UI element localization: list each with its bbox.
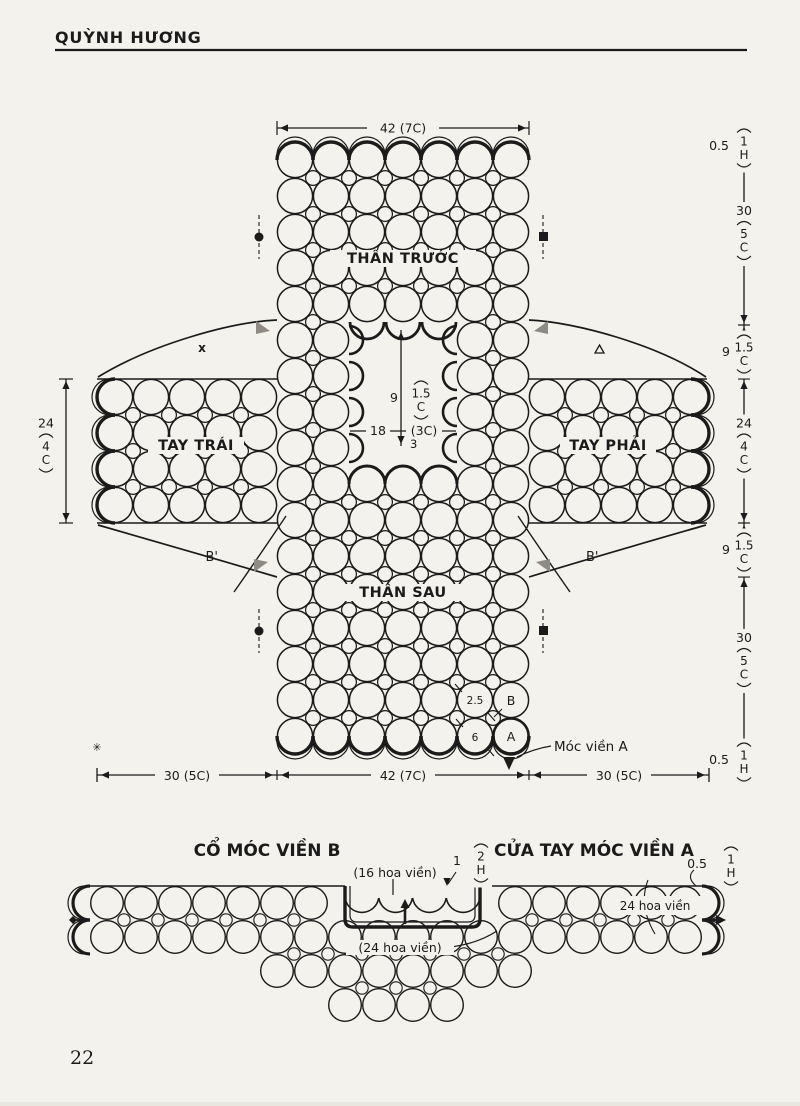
motif-circle (277, 322, 312, 357)
motif-circle (349, 286, 384, 321)
motif-circle (421, 178, 456, 213)
measure-sub: 5 (740, 654, 748, 668)
motif-circle (533, 887, 566, 920)
motif-circle (457, 430, 492, 465)
motif-circle (329, 989, 362, 1022)
right-sleeve-label: TAY PHẢI (569, 435, 647, 454)
bold-down-arrow (503, 757, 515, 770)
motif-circle (385, 682, 420, 717)
motif-circle (457, 466, 492, 501)
motif-circle (295, 887, 328, 920)
motif-circle (277, 646, 312, 681)
motif-circle (450, 531, 465, 546)
page-number: 22 (70, 1047, 94, 1069)
motif-circle (424, 982, 436, 994)
motif-circle (313, 610, 348, 645)
motif-circle (493, 574, 528, 609)
dot-marker (255, 627, 264, 636)
measure-sub: 1.5 (734, 341, 753, 355)
motif-circle (306, 639, 321, 654)
motif-circle (306, 315, 321, 330)
motif-circle (126, 480, 141, 495)
front-body-label: THÂN TRƯỚC (347, 249, 459, 267)
neck-edging-title: CỔ MÓC VIỀN B (194, 836, 341, 861)
motif-circle (601, 451, 636, 486)
motif-circle (241, 487, 276, 522)
motif-circle (277, 394, 312, 429)
motif-circle (234, 480, 249, 495)
motif-circle (342, 567, 357, 582)
motif-circle (313, 358, 348, 393)
motif-circle (594, 408, 609, 423)
motif-circle (558, 480, 573, 495)
motif-circle (125, 921, 158, 954)
motif-circle (465, 955, 498, 988)
motif-circle (277, 538, 312, 573)
motif-circle (431, 955, 464, 988)
measure-value: 9 (390, 390, 398, 405)
motif-circle (385, 646, 420, 681)
motif-circle (493, 502, 528, 537)
square-marker (539, 232, 548, 241)
motif-circle (499, 887, 532, 920)
asterisk-mark: ✳ (92, 741, 101, 754)
arrowhead (740, 579, 747, 587)
motif-circle (133, 451, 168, 486)
motif-circle (421, 502, 456, 537)
measure-value: 0.5 (709, 138, 729, 153)
motif-circle (526, 914, 538, 926)
motif-circle (162, 480, 177, 495)
motif-circle (342, 675, 357, 690)
motif-circle (457, 178, 492, 213)
motif-circle (421, 610, 456, 645)
motif-circle (414, 711, 429, 726)
motif-circle (277, 358, 312, 393)
motif-circle (450, 675, 465, 690)
motif-circle (630, 408, 645, 423)
motif-circle (205, 487, 240, 522)
motif-circle (486, 387, 501, 402)
motif-circle (261, 921, 294, 954)
motif-circle (630, 480, 645, 495)
motif-circle (457, 394, 492, 429)
measure-sub: C (740, 354, 748, 368)
motif-b-label: B (507, 693, 516, 708)
motif-circle (205, 451, 240, 486)
motif-circle (493, 358, 528, 393)
arrowhead (397, 436, 404, 444)
motif-circle (457, 214, 492, 249)
crochet-pattern-diagram: 0.51H305C91.5C244C91.5C305C0.51H244C91.5… (0, 0, 800, 1102)
motif-circle (421, 682, 456, 717)
motif-circle (666, 480, 681, 495)
motif-circle (594, 480, 609, 495)
neck-flower-count: (16 hoa viền) (353, 865, 436, 880)
motif-circle (342, 711, 357, 726)
motif-circle (414, 639, 429, 654)
motif-circle (414, 171, 429, 186)
motif-circle (306, 459, 321, 474)
arrowhead (517, 771, 525, 778)
motif-circle (313, 286, 348, 321)
motif-circle (385, 610, 420, 645)
top-width-label: 42 (7C) (380, 121, 426, 136)
motif-circle (313, 322, 348, 357)
motif-circle (486, 351, 501, 366)
left-ruler: 244C (35, 379, 73, 523)
motif-circle (133, 487, 168, 522)
measure-sub: 4 (42, 440, 50, 454)
motif-circle (378, 207, 393, 222)
b-prime-right-mark: B' (586, 550, 599, 565)
motif-circle (313, 430, 348, 465)
motif-circle (637, 451, 672, 486)
motif-circle (628, 914, 640, 926)
motif-circle (152, 914, 164, 926)
motif-circle (529, 379, 564, 414)
motif-circle (601, 379, 636, 414)
measure-value: 30 (736, 203, 752, 218)
motif-circle (306, 171, 321, 186)
motif-circle (378, 567, 393, 582)
motif-circle (414, 567, 429, 582)
dot-marker (255, 233, 264, 242)
motif-circle (666, 408, 681, 423)
motif-circle (390, 982, 402, 994)
motif-circle (205, 379, 240, 414)
motif-circle (378, 639, 393, 654)
motif-circle (421, 286, 456, 321)
motif-circle (342, 531, 357, 546)
bold-up-arrow (401, 899, 410, 908)
motif-circle (186, 914, 198, 926)
measure-value: 0.5 (709, 752, 729, 767)
bottom-width-right: 30 (5C) (596, 768, 642, 783)
motif-circle (486, 567, 501, 582)
motif-circle (457, 322, 492, 357)
motif-circle (306, 387, 321, 402)
arrowhead (101, 771, 109, 778)
motif-circle (349, 682, 384, 717)
motif-circle (277, 610, 312, 645)
motif-circle (342, 171, 357, 186)
motif-circle (306, 603, 321, 618)
motif-circle (567, 921, 600, 954)
motif-circle (457, 286, 492, 321)
motif-circle (118, 914, 130, 926)
motif-circle (486, 459, 501, 474)
motif-circle (457, 538, 492, 573)
motif-circle (414, 603, 429, 618)
measure-sub: C (740, 668, 748, 682)
measure-sub: C (42, 453, 50, 467)
measure-sub: C (417, 400, 425, 414)
motif-circle (349, 502, 384, 537)
motif-circle (414, 207, 429, 222)
motif-circle (306, 675, 321, 690)
motif-circle (450, 171, 465, 186)
motif-circle (193, 887, 226, 920)
motif-circle (193, 921, 226, 954)
motif-circle (356, 982, 368, 994)
motif-circle (486, 531, 501, 546)
motif-circle (313, 682, 348, 717)
measure-sub: H (739, 148, 748, 162)
motif-circle (450, 279, 465, 294)
junction-shade (536, 559, 550, 572)
bottom-width-left: 30 (5C) (164, 768, 210, 783)
motif-circle (486, 243, 501, 258)
motif-circle (457, 610, 492, 645)
motif-circle (499, 955, 532, 988)
arrowhead (280, 124, 288, 131)
motif-circle (529, 415, 564, 450)
neck-width-value: 18 (370, 423, 386, 438)
right-ruler: 0.51H305C91.5C244C91.5C305C0.51H (709, 125, 755, 787)
motif-circle (91, 887, 124, 920)
motif-circle (342, 207, 357, 222)
motif-circle (261, 955, 294, 988)
motif-circle (126, 408, 141, 423)
motif-circle (492, 948, 504, 960)
motif-circle (486, 171, 501, 186)
motif-circle (277, 430, 312, 465)
motif-circle (421, 538, 456, 573)
motif-circle (662, 914, 674, 926)
motif-circle (669, 921, 702, 954)
motif-circle (313, 214, 348, 249)
motif-circle (594, 914, 606, 926)
motif-circle (486, 603, 501, 618)
motif-circle (241, 451, 276, 486)
motif-circle (313, 466, 348, 501)
motif-circle (558, 408, 573, 423)
motif-circle (227, 887, 260, 920)
motif-circle (486, 423, 501, 438)
arrowhead (533, 771, 541, 778)
motif-circle (533, 921, 566, 954)
motif-circle (601, 487, 636, 522)
motif-circle (378, 495, 393, 510)
measure-sub: 2 (477, 850, 485, 864)
motif-circle (277, 574, 312, 609)
motif-circle (313, 646, 348, 681)
motif-circle (385, 538, 420, 573)
motif-circle (198, 408, 213, 423)
motif-circle (277, 682, 312, 717)
measure-sub: 1.5 (411, 387, 430, 401)
measure-sub: 1 (740, 135, 748, 149)
motif-circle (378, 603, 393, 618)
motif-circle (277, 214, 312, 249)
motif-circle (363, 989, 396, 1022)
motif-circle (227, 921, 260, 954)
motif-circle (486, 495, 501, 510)
motif-circle (486, 639, 501, 654)
motif-circle (277, 286, 312, 321)
motif-circle (198, 480, 213, 495)
motif-circle (288, 914, 300, 926)
right-arrow (716, 915, 726, 925)
motif-circle (342, 495, 357, 510)
measure-sub: H (476, 863, 485, 877)
back-neck-drop: 3 (410, 437, 417, 451)
motif-circle (450, 567, 465, 582)
motif-circle (493, 646, 528, 681)
motif-circle (529, 451, 564, 486)
motif-circle (329, 955, 362, 988)
measure-value: 30 (736, 630, 752, 645)
motif-circle (261, 887, 294, 920)
motif-circle (169, 451, 204, 486)
motif-circle (397, 955, 430, 988)
motif-circle (349, 214, 384, 249)
motif-circle (277, 178, 312, 213)
motif-circle (91, 921, 124, 954)
x-mark: x (198, 341, 206, 355)
motif-circle (565, 379, 600, 414)
motif-circle (378, 531, 393, 546)
square-marker (539, 626, 548, 635)
motif-circle (493, 250, 528, 285)
motif-circle (666, 444, 681, 459)
motif-circle (486, 279, 501, 294)
back-body-label: THÂN SAU (359, 584, 446, 601)
motif-circle (313, 178, 348, 213)
motif-circle (378, 279, 393, 294)
motif-circle (313, 502, 348, 537)
motif-circle (169, 487, 204, 522)
motif-circle (306, 279, 321, 294)
motif-circle (529, 487, 564, 522)
motif-circle (162, 408, 177, 423)
arrowhead (740, 381, 747, 389)
motif-circle (342, 603, 357, 618)
b-prime-left-mark: B' (206, 550, 219, 565)
motif-circle (306, 531, 321, 546)
motif-circle (560, 914, 572, 926)
motif-circle (385, 178, 420, 213)
motif-circle (397, 989, 430, 1022)
book-header: QUỲNH HƯƠNG (55, 28, 202, 47)
arrowhead (265, 771, 273, 778)
motif-circle (349, 178, 384, 213)
arrowhead (697, 771, 705, 778)
motif-circle (493, 538, 528, 573)
cuff-edging-title: CỬA TAY MÓC VIỀN A (494, 837, 695, 861)
arrowhead (281, 771, 289, 778)
large-motif-diameter: 6 (472, 732, 479, 744)
motif-circle (457, 358, 492, 393)
motif-circle (486, 675, 501, 690)
arrowhead (62, 513, 69, 521)
motif-circle (486, 315, 501, 330)
motif-circle (450, 603, 465, 618)
motif-circle (450, 495, 465, 510)
motif-circle (241, 415, 276, 450)
motif-circle (431, 989, 464, 1022)
measure-value: 9 (722, 344, 730, 359)
motif-circle (601, 921, 634, 954)
motif-circle (565, 487, 600, 522)
motif-circle (637, 487, 672, 522)
measure-sub: C (740, 453, 748, 467)
motif-circle (306, 243, 321, 258)
motif-circle (378, 171, 393, 186)
motif-circle (234, 408, 249, 423)
motif-circle (133, 379, 168, 414)
cuff-flower-count: 24 hoa viền (620, 899, 691, 913)
edge-crochet-note: Móc viền A (554, 738, 629, 755)
motif-circle (421, 646, 456, 681)
motif-circle (125, 887, 158, 920)
motif-circle (159, 887, 192, 920)
motif-circle (414, 675, 429, 690)
motif-circle (499, 921, 532, 954)
motif-circle (565, 451, 600, 486)
motif-circle (295, 921, 328, 954)
motif-circle (385, 502, 420, 537)
motif-circle (313, 394, 348, 429)
measure-sub: 1 (740, 749, 748, 763)
motif-circle (450, 639, 465, 654)
motif-circle (169, 379, 204, 414)
motif-circle (378, 675, 393, 690)
motif-circle (254, 914, 266, 926)
motif-circle (342, 279, 357, 294)
motif-circle (220, 914, 232, 926)
measure-sub: C (740, 241, 748, 255)
motif-circle (349, 538, 384, 573)
left-sleeve-label: TAY TRÁI (158, 437, 234, 454)
measure-sub: C (740, 552, 748, 566)
motif-circle (567, 887, 600, 920)
motif-circle (414, 279, 429, 294)
motif-circle (349, 646, 384, 681)
measure-value: 24 (38, 416, 54, 431)
junction-shade (534, 321, 548, 334)
arrowhead (740, 513, 747, 521)
motif-circle (306, 495, 321, 510)
triangle-mark (595, 345, 604, 353)
measure-value: 24 (736, 416, 752, 431)
motif-circle (306, 351, 321, 366)
motif-circle (306, 423, 321, 438)
bottom-width-center: 42 (7C) (380, 768, 426, 783)
motif-circle (363, 955, 396, 988)
neck-width-unit: (3C) (411, 423, 437, 438)
measure-value: 1 (453, 853, 461, 868)
motif-circle (306, 567, 321, 582)
scanned-book-page: 0.51H305C91.5C244C91.5C305C0.51H244C91.5… (0, 0, 800, 1102)
motif-circle (126, 444, 141, 459)
motif-circle (385, 286, 420, 321)
motif-a-label: A (507, 729, 516, 744)
motif-circle (277, 466, 312, 501)
motif-circle (306, 711, 321, 726)
motif-circle (486, 207, 501, 222)
arrowhead (62, 381, 69, 389)
motif-circle (458, 948, 470, 960)
junction-shade (254, 559, 268, 572)
motif-circle (457, 646, 492, 681)
motif-circle (313, 538, 348, 573)
motif-circle (241, 379, 276, 414)
motif-circle (493, 466, 528, 501)
motif-circle (414, 531, 429, 546)
motif-circle (385, 214, 420, 249)
